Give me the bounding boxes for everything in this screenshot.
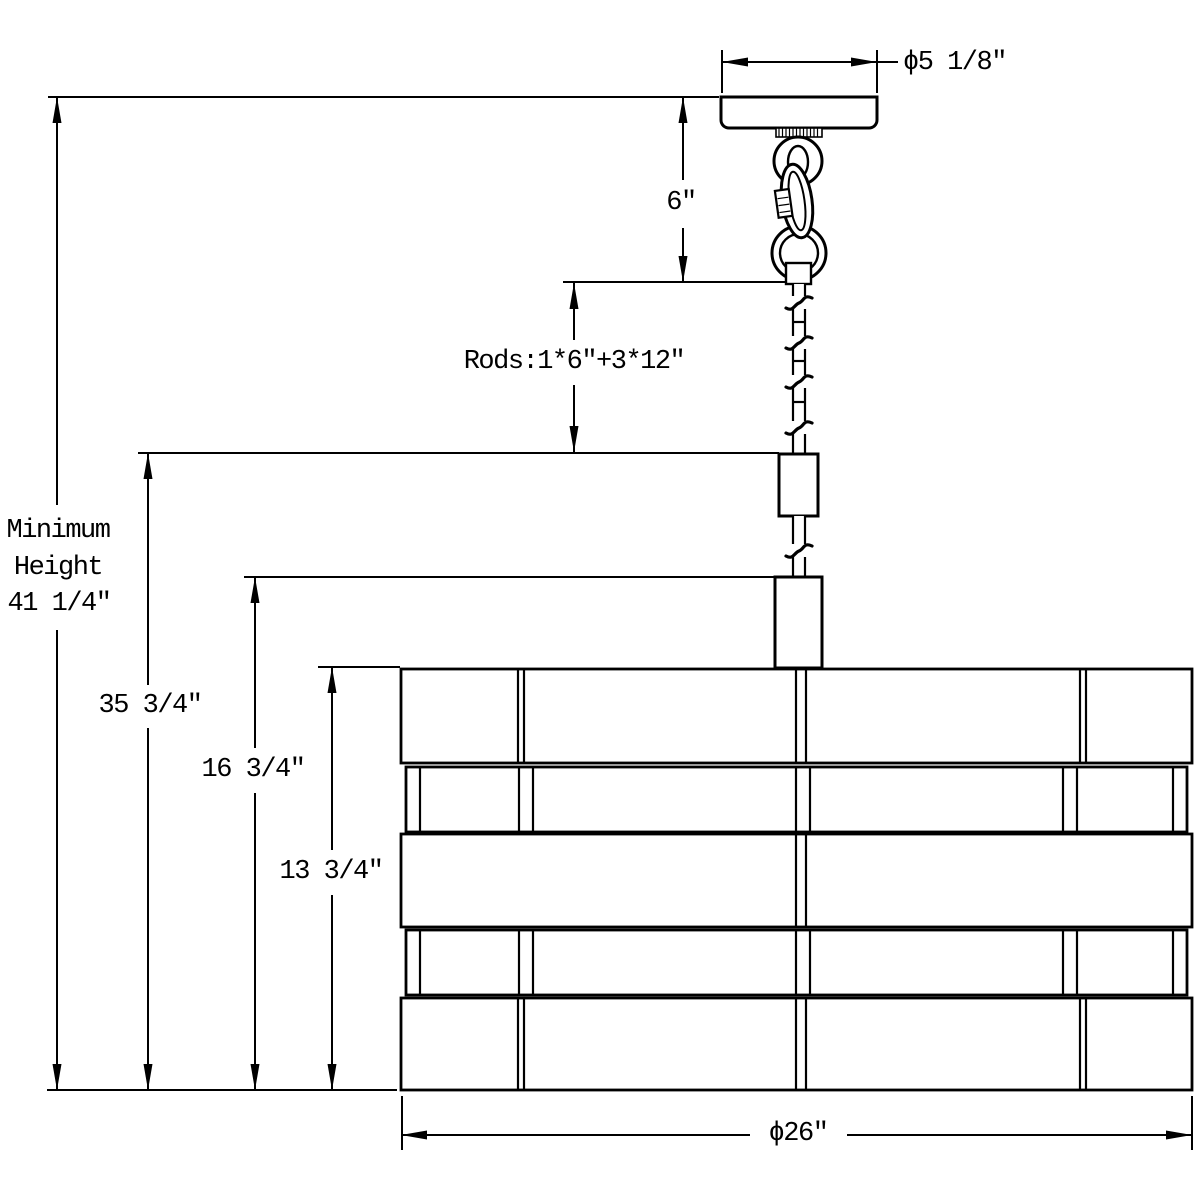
rod-adapter <box>786 263 811 284</box>
arrowhead <box>679 256 688 282</box>
dim-13-label: 13 3/4″ <box>280 857 383 887</box>
canopy-diameter-label: ϕ5 1/8″ <box>903 48 1006 78</box>
chain-length-label: 6″ <box>666 188 695 218</box>
arrowhead <box>144 1064 153 1090</box>
dim-35-label: 35 3/4″ <box>99 691 202 721</box>
arrowhead <box>251 1064 260 1090</box>
shade-hanger <box>775 577 822 668</box>
rod-break-symbol <box>786 375 812 388</box>
arrowhead <box>722 58 748 67</box>
arrowhead <box>328 667 337 693</box>
rod-break-symbol <box>786 296 812 309</box>
ceiling-canopy-group <box>721 97 877 137</box>
minimum-height-label-line1: Minimum <box>7 516 110 546</box>
quick-link-sleeve <box>775 189 793 218</box>
rod-coupler <box>779 454 818 516</box>
arrowhead <box>401 1131 427 1140</box>
chain-group <box>772 137 826 284</box>
ceiling-canopy <box>721 97 877 128</box>
arrowhead <box>53 97 62 123</box>
lower-rod <box>786 516 812 577</box>
arrowhead <box>679 97 688 123</box>
arrowhead <box>1166 1131 1192 1140</box>
rod-break-symbol <box>786 336 812 349</box>
shade-diameter-label: ϕ26″ <box>769 1119 828 1149</box>
arrowhead <box>53 1064 62 1090</box>
arrowhead <box>144 453 153 479</box>
minimum-height-label-line2: Height <box>14 553 102 583</box>
pendant-light-dimension-diagram: ϕ5 1/8″ 6″ Rods:1*6″+3*12″ Minimum Heigh… <box>0 0 1200 1200</box>
arrowhead <box>251 577 260 603</box>
drum-shade <box>401 669 1192 1090</box>
dim-16-label: 16 3/4″ <box>202 755 305 785</box>
arrowhead <box>851 58 877 67</box>
upper-rod <box>786 284 812 454</box>
rod-break-symbol <box>786 544 812 557</box>
arrowhead <box>328 1064 337 1090</box>
dim-canopy-diameter <box>722 50 898 93</box>
technical-drawing-page: ϕ5 1/8″ 6″ Rods:1*6″+3*12″ Minimum Heigh… <box>0 0 1200 1200</box>
arrowhead <box>570 426 579 452</box>
rod-break-symbol <box>786 421 812 434</box>
rods-note-label: Rods:1*6″+3*12″ <box>464 347 685 377</box>
minimum-height-label-line3: 41 1/4″ <box>8 589 111 619</box>
arrowhead <box>570 283 579 309</box>
